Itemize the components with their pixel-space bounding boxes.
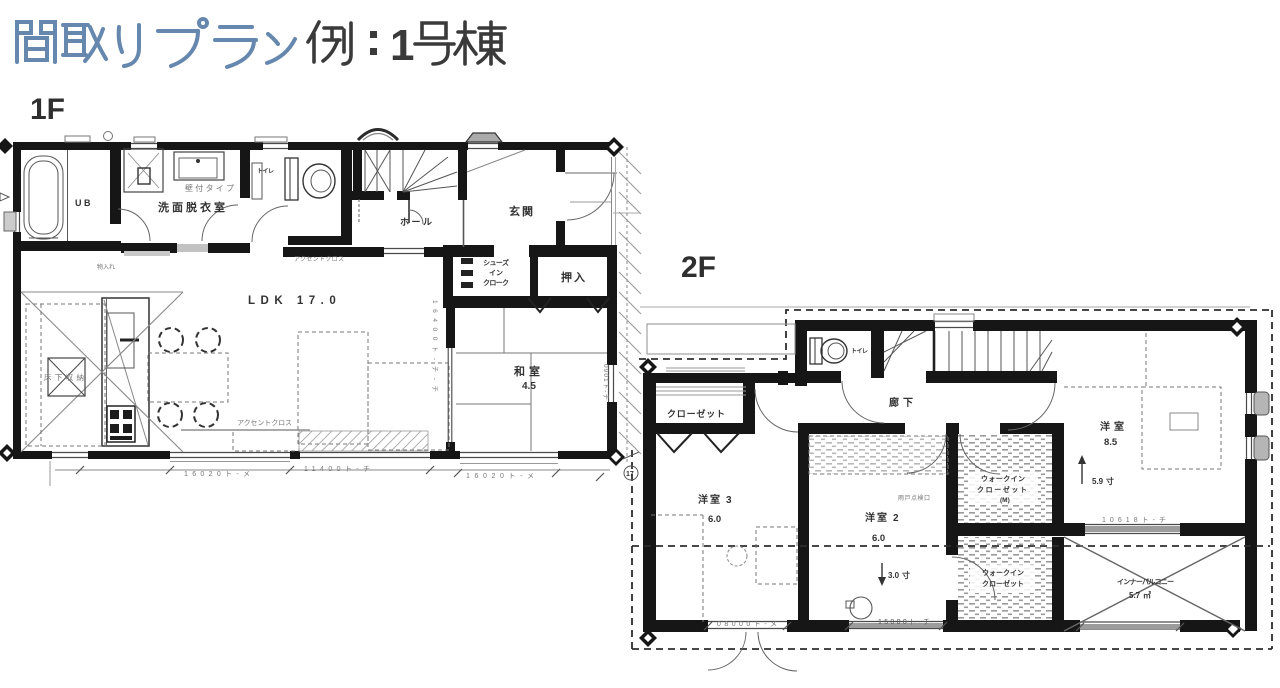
svg-text:シューズ: シューズ (483, 258, 509, 267)
svg-text:アクセントクロス: アクセントクロス (294, 256, 344, 263)
svg-text:インナーバルコニー: インナーバルコニー (1117, 578, 1174, 586)
svg-text:6.0: 6.0 (708, 514, 721, 525)
svg-text:トイレ: トイレ (851, 348, 868, 355)
svg-text:(M): (M) (1000, 497, 1010, 504)
svg-text:クローゼット: クローゼット (982, 579, 1024, 588)
svg-text:ウォークイン: ウォークイン (981, 474, 1025, 483)
svg-text:寸: 寸 (1106, 476, 1114, 486)
svg-text:3.0: 3.0 (888, 571, 900, 580)
svg-text:1F: 1F (30, 93, 65, 126)
svg-text:5.9: 5.9 (1092, 477, 1104, 486)
svg-text:クローク: クローク (483, 278, 509, 287)
svg-text:ウォークイン: ウォークイン (982, 568, 1024, 577)
svg-text:2: 2 (893, 513, 899, 524)
svg-text:LDK 17.0: LDK 17.0 (248, 295, 341, 307)
svg-text:壁付タイプ: 壁付タイプ (185, 183, 234, 193)
svg-text:3: 3 (726, 495, 732, 506)
svg-text:洗面脱衣室: 洗面脱衣室 (158, 200, 225, 214)
svg-text:5.7: 5.7 (1129, 591, 1141, 600)
svg-text:4.5: 4.5 (522, 381, 536, 392)
svg-text:クローゼット: クローゼット (667, 408, 725, 419)
svg-text:0901ト-チ: 0901ト-チ (602, 364, 610, 400)
svg-text:6.0: 6.0 (872, 533, 885, 544)
svg-text:15000ト-チ: 15000ト-チ (878, 618, 930, 626)
svg-text:8.5: 8.5 (1104, 437, 1118, 448)
svg-text:U B: U B (75, 198, 91, 208)
svg-text:雨戸点検口: 雨戸点検口 (898, 494, 930, 502)
svg-text:アクセントクロス: アクセントクロス (237, 419, 292, 427)
svg-text:㎡: ㎡ (1143, 590, 1151, 600)
svg-text:トイレ: トイレ (257, 168, 274, 175)
svg-text:イン: イン (489, 269, 503, 277)
svg-text:17: 17 (626, 471, 634, 478)
svg-text:1: 1 (390, 21, 414, 70)
svg-text:寸: 寸 (902, 570, 910, 580)
svg-text:物入れ: 物入れ (97, 263, 115, 271)
svg-text:2F: 2F (681, 251, 716, 284)
svg-text:ホール: ホール (400, 217, 432, 227)
